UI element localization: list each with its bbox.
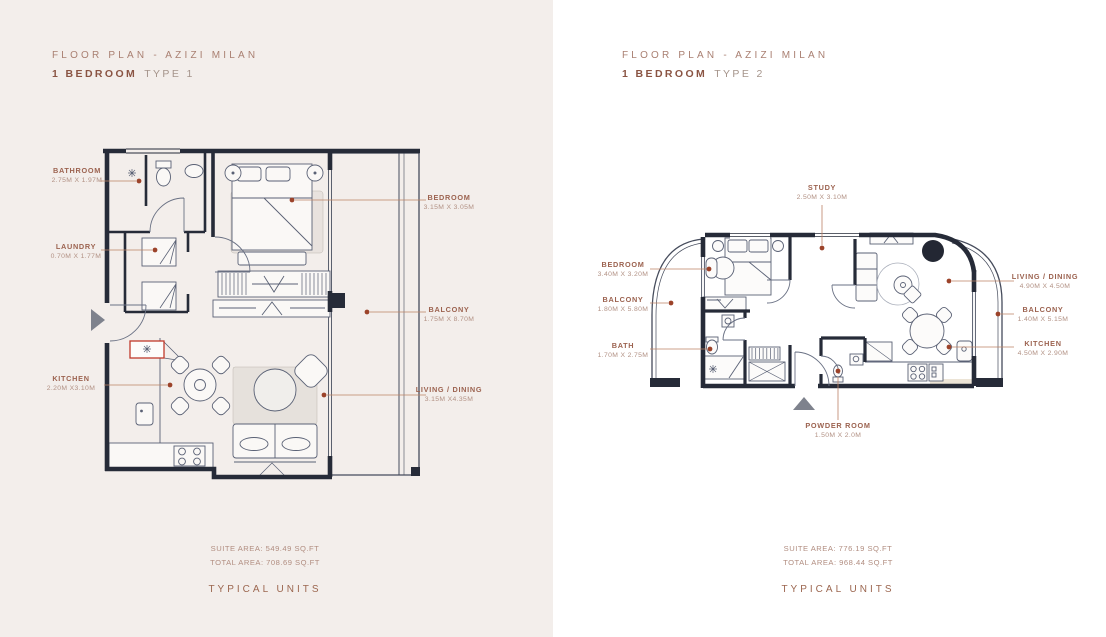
label-balcony-left: BALCONY 1.80M X 5.80M	[588, 296, 658, 314]
header-type-1: FLOOR PLAN - AZIZI MILAN 1 BEDROOMTYPE 1	[52, 50, 258, 80]
label-bedroom: BEDROOM 3.15M X 3.05M	[414, 194, 484, 212]
label-bathroom: BATHROOM 2.75M X 1.97M	[45, 167, 109, 185]
header-type-2: FLOOR PLAN - AZIZI MILAN 1 BEDROOMTYPE 2	[622, 50, 828, 80]
label-study: STUDY 2.50M X 3.10M	[787, 184, 857, 202]
area-summary-type-2: SUITE AREA: 776.19 SQ.FT TOTAL AREA: 968…	[688, 542, 988, 570]
plan-title: FLOOR PLAN - AZIZI MILAN	[52, 50, 258, 61]
label-powder-room: POWDER ROOM 1.50M X 2.0M	[802, 422, 874, 440]
furniture	[703, 233, 972, 382]
total-area: TOTAL AREA: 968.44 SQ.FT	[688, 556, 988, 570]
typical-units-type-2: TYPICAL UNITS	[688, 584, 988, 595]
floor-plan-brochure: FLOOR PLAN - AZIZI MILAN 1 BEDROOMTYPE 1…	[0, 0, 1106, 637]
label-balcony: BALCONY 1.75M X 8.70M	[414, 306, 484, 324]
door-swings	[110, 198, 250, 341]
typical-units-type-1: TYPICAL UNITS	[115, 584, 415, 595]
plan-subtitle: 1 BEDROOMTYPE 2	[622, 68, 828, 80]
label-living-dining: LIVING / DINING 3.15M X4.35M	[412, 386, 486, 404]
label-balcony-right: BALCONY 1.40M X 5.15M	[1008, 306, 1078, 324]
suite-area: SUITE AREA: 549.49 SQ.FT	[115, 542, 415, 556]
suite-area: SUITE AREA: 776.19 SQ.FT	[688, 542, 988, 556]
total-area: TOTAL AREA: 708.69 SQ.FT	[115, 556, 415, 570]
label-bedroom-2: BEDROOM 3.40M X 3.20M	[588, 261, 658, 279]
plan-subtitle-type: TYPE 1	[144, 68, 195, 80]
label-living-dining-2: LIVING / DINING 4.90M X 4.50M	[1008, 273, 1082, 291]
plan-title: FLOOR PLAN - AZIZI MILAN	[622, 50, 828, 61]
label-kitchen-2: KITCHEN 4.50M X 2.90M	[1008, 340, 1078, 358]
entry-arrow	[793, 397, 815, 410]
plan-subtitle-bold: 1 BEDROOM	[52, 68, 137, 80]
plan-subtitle-type: TYPE 2	[714, 68, 765, 80]
plan-subtitle-bold: 1 BEDROOM	[622, 68, 707, 80]
balcony-structure	[330, 153, 419, 475]
label-bath: BATH 1.70M X 2.75M	[588, 342, 658, 360]
area-summary-type-1: SUITE AREA: 549.49 SQ.FT TOTAL AREA: 708…	[115, 542, 415, 570]
label-kitchen: KITCHEN 2.20M X3.10M	[39, 375, 103, 393]
plan-subtitle: 1 BEDROOMTYPE 1	[52, 68, 258, 80]
entry-arrow	[91, 309, 105, 331]
label-laundry: LAUNDRY 0.70M X 1.77M	[44, 243, 108, 261]
furniture	[109, 161, 330, 477]
